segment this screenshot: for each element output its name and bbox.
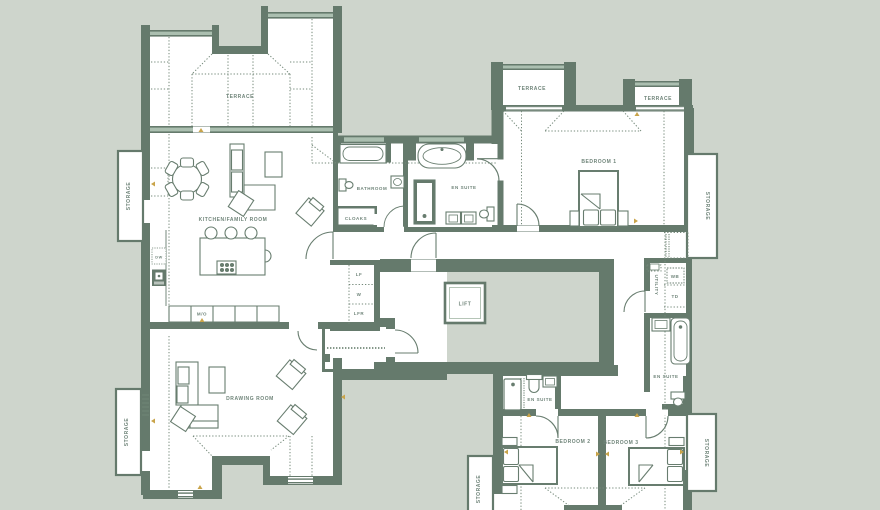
svg-text:LF: LF [356, 272, 363, 277]
svg-text:W: W [357, 292, 362, 297]
svg-text:STORAGE: STORAGE [704, 192, 710, 221]
svg-text:TERRACE: TERRACE [644, 96, 672, 102]
svg-text:BATHROOM: BATHROOM [357, 186, 388, 191]
svg-text:WB: WB [671, 274, 680, 279]
svg-text:CLOAKS: CLOAKS [345, 216, 367, 221]
svg-text:UTILITY: UTILITY [654, 275, 659, 296]
svg-text:EN SUITE: EN SUITE [451, 185, 476, 190]
svg-text:BEDROOM 1: BEDROOM 1 [581, 159, 616, 165]
svg-text:TERRACE: TERRACE [226, 94, 254, 100]
svg-text:M/O: M/O [197, 312, 207, 317]
svg-text:STORAGE: STORAGE [126, 182, 132, 211]
svg-text:KITCHEN/FAMILY ROOM: KITCHEN/FAMILY ROOM [199, 217, 268, 223]
svg-text:EN SUITE: EN SUITE [653, 374, 678, 379]
svg-text:LFR: LFR [354, 311, 365, 316]
svg-text:STORAGE: STORAGE [124, 418, 130, 447]
svg-text:BEDROOM 3: BEDROOM 3 [603, 440, 638, 446]
svg-text:LIFT: LIFT [459, 302, 472, 308]
svg-text:EN SUITE: EN SUITE [527, 397, 552, 402]
svg-text:TD: TD [671, 294, 678, 299]
svg-text:DRAWING ROOM: DRAWING ROOM [226, 396, 274, 402]
svg-text:TERRACE: TERRACE [518, 86, 546, 92]
svg-text:DW: DW [155, 256, 162, 260]
svg-text:STORAGE: STORAGE [703, 439, 709, 468]
svg-text:STORAGE: STORAGE [476, 475, 482, 504]
svg-text:BEDROOM 2: BEDROOM 2 [555, 439, 590, 445]
